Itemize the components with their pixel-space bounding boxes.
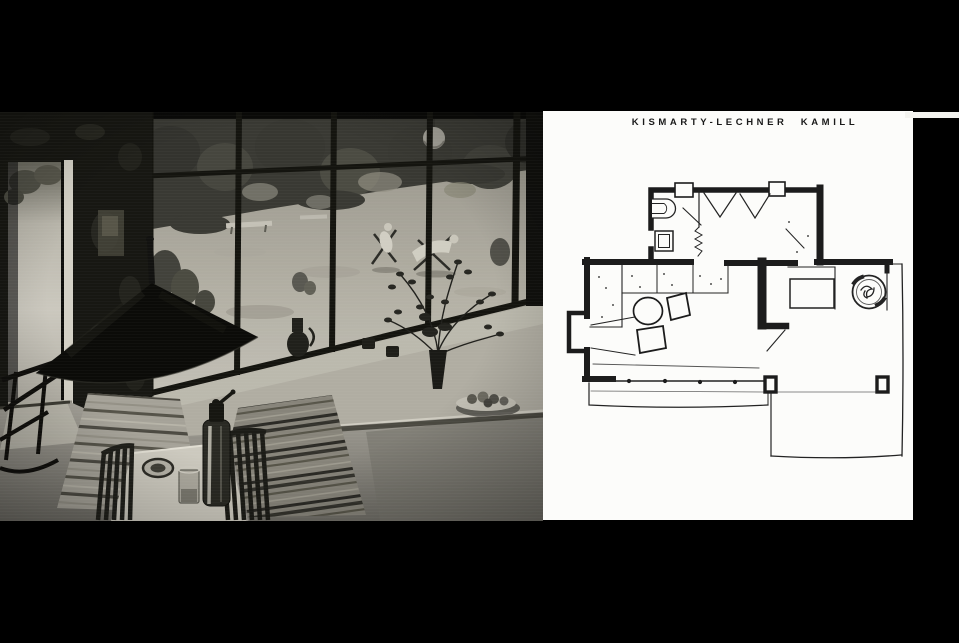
bedroom xyxy=(767,267,887,351)
floor-plan-panel: KISMARTY-LECHNER KAMILL xyxy=(543,111,913,520)
hanger-mark xyxy=(740,194,770,218)
hearth-splay xyxy=(591,317,635,355)
door-swing xyxy=(767,330,785,351)
exterior-walls xyxy=(585,188,890,379)
armchair xyxy=(637,326,666,353)
wardrobe xyxy=(695,190,804,256)
chimney xyxy=(675,183,693,197)
screenshot: KISMARTY-LECHNER KAMILL xyxy=(0,0,959,643)
washbasin xyxy=(652,199,676,218)
interior-photograph xyxy=(0,112,543,521)
dining-table xyxy=(634,298,663,325)
chimney xyxy=(769,182,785,196)
door-swing xyxy=(786,229,804,248)
hanger-mark xyxy=(704,193,736,217)
radiator-zigzag xyxy=(695,227,702,256)
terrace xyxy=(589,381,768,407)
pier xyxy=(877,377,888,392)
stipple-dots xyxy=(598,221,809,318)
scan-paper-sliver xyxy=(905,112,959,118)
vignette xyxy=(0,112,543,521)
bed xyxy=(790,279,834,308)
floor-edge-line xyxy=(593,364,759,368)
door-swing xyxy=(683,208,701,225)
bathroom xyxy=(652,199,701,251)
armchair xyxy=(667,293,690,320)
floor-plan-drawing xyxy=(543,111,913,520)
interior-photo-drawing xyxy=(0,112,543,521)
pier xyxy=(765,377,776,392)
